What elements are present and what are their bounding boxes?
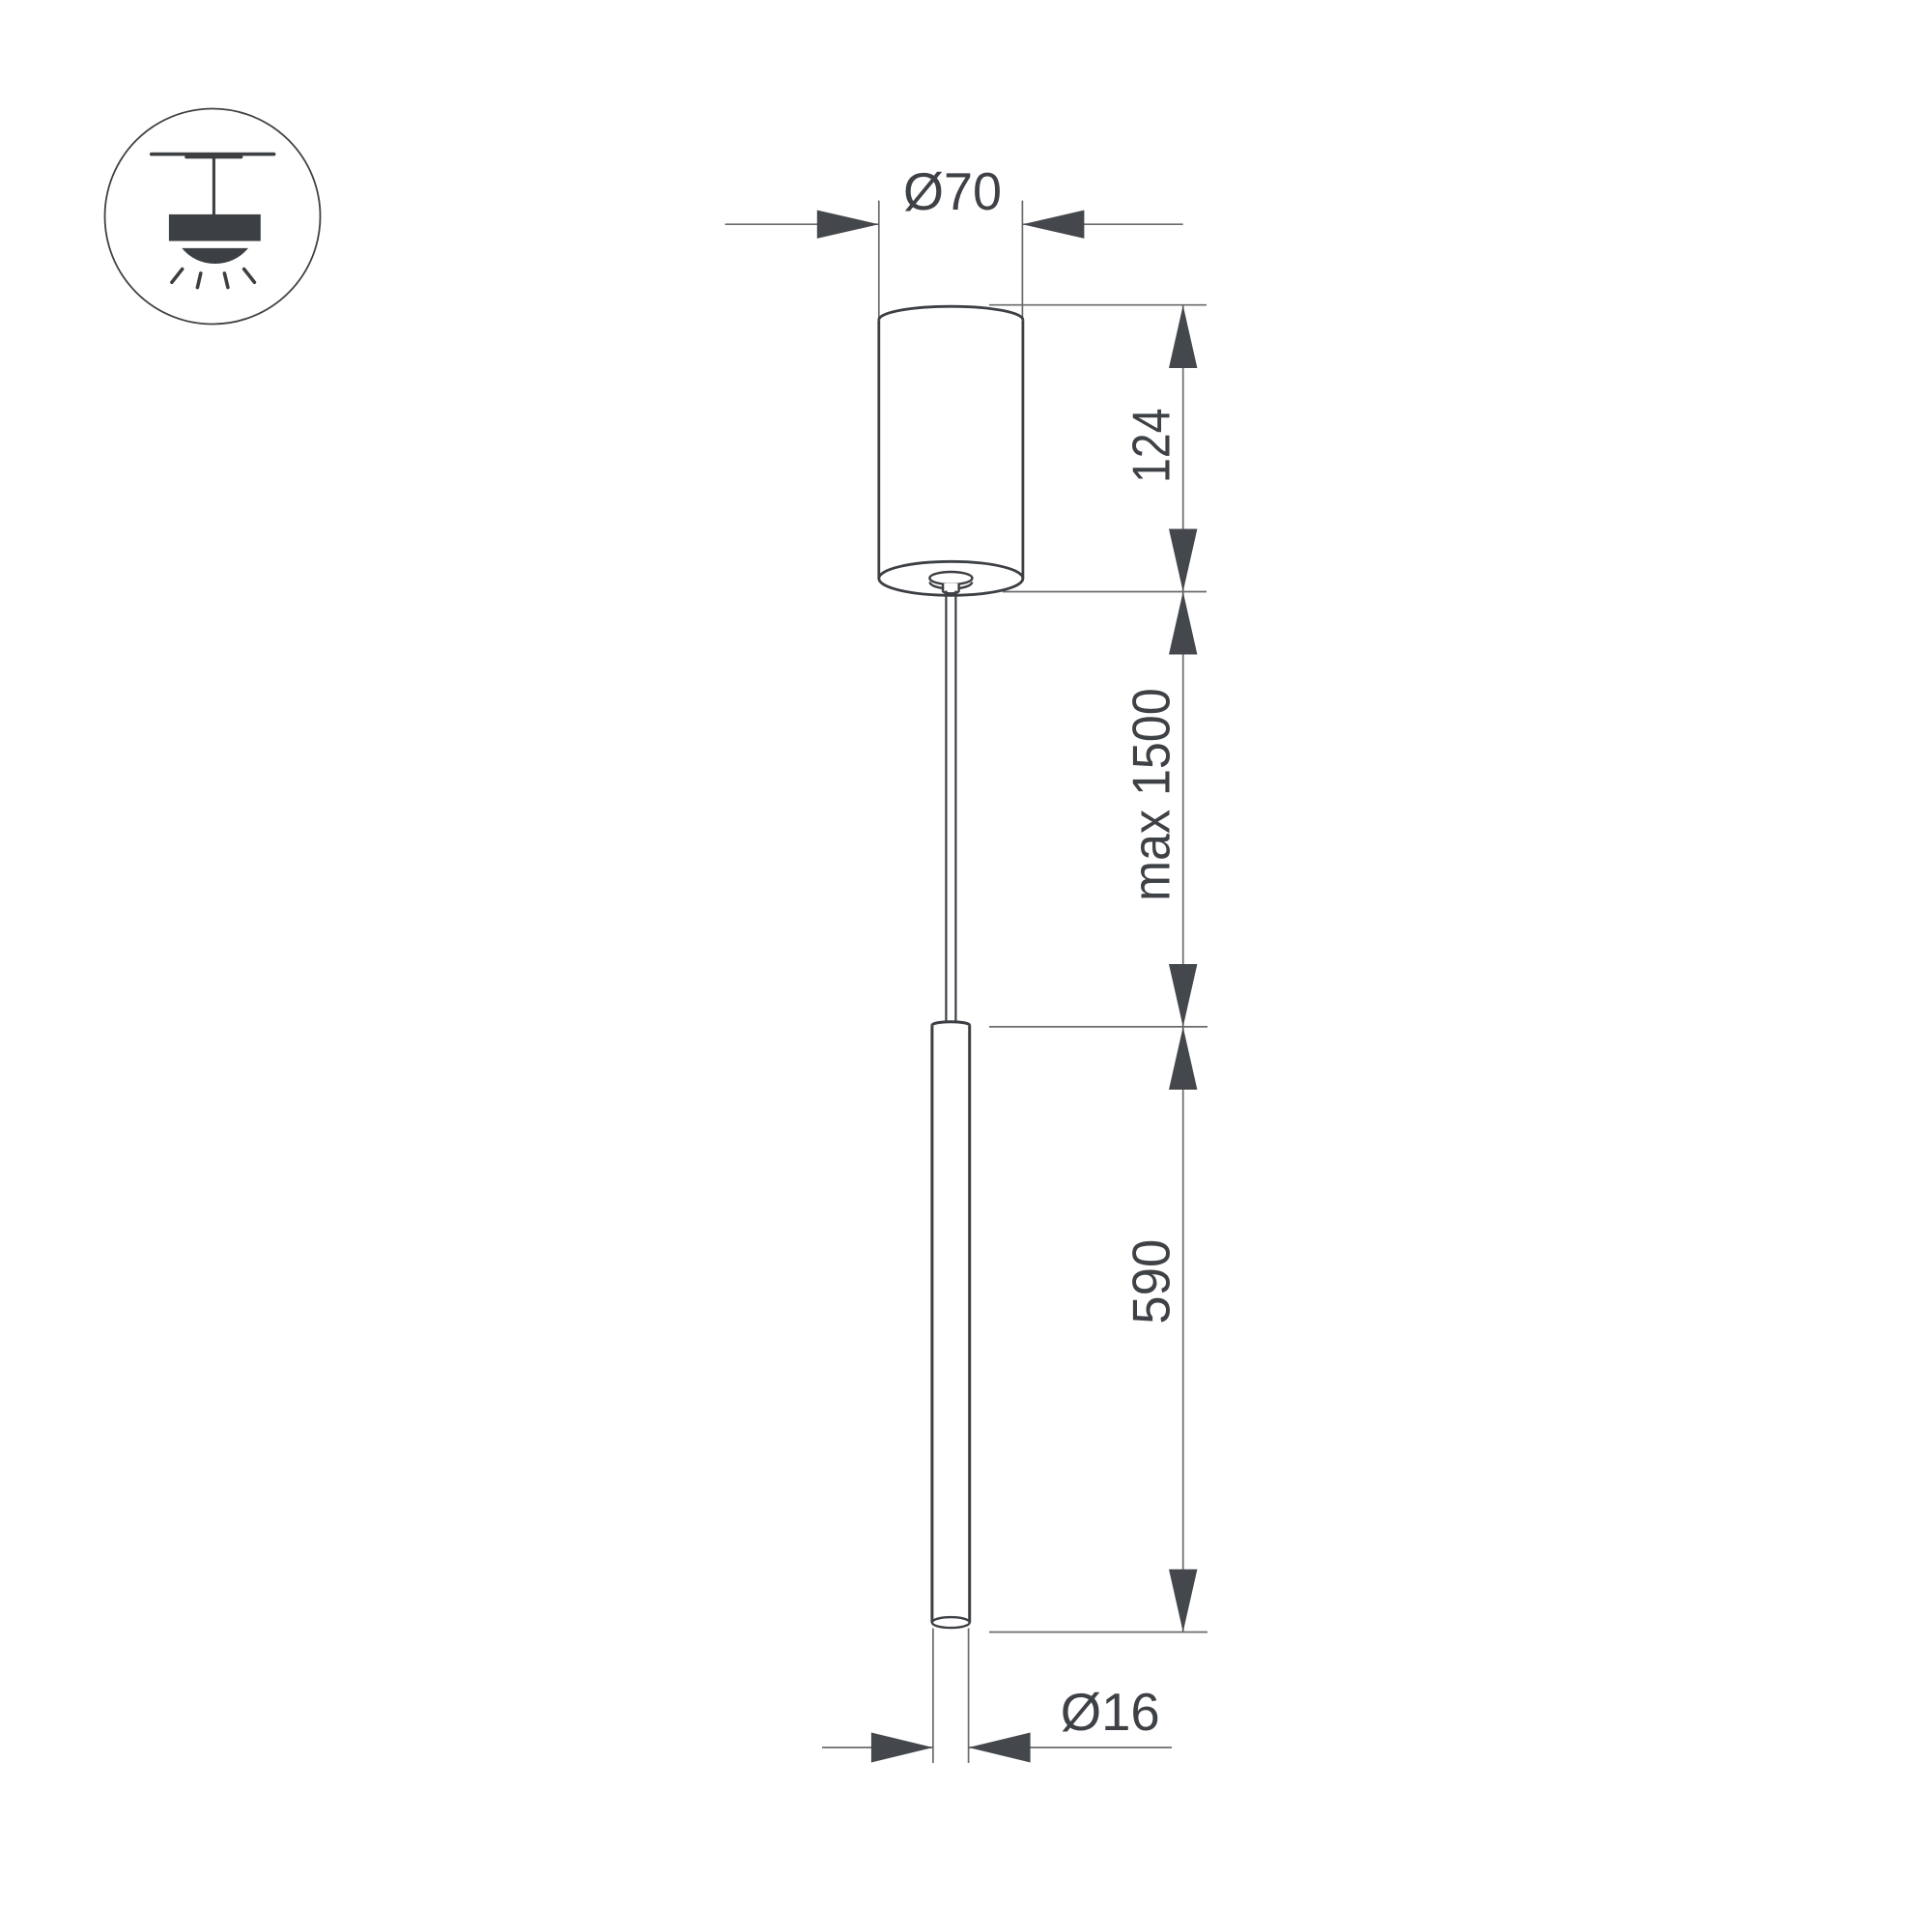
svg-text:590: 590 xyxy=(1122,1239,1181,1324)
svg-text:124: 124 xyxy=(1122,409,1181,484)
svg-text:Ø70: Ø70 xyxy=(903,161,1002,221)
svg-text:Ø16: Ø16 xyxy=(1061,1682,1160,1742)
svg-text:max 1500: max 1500 xyxy=(1122,688,1181,901)
